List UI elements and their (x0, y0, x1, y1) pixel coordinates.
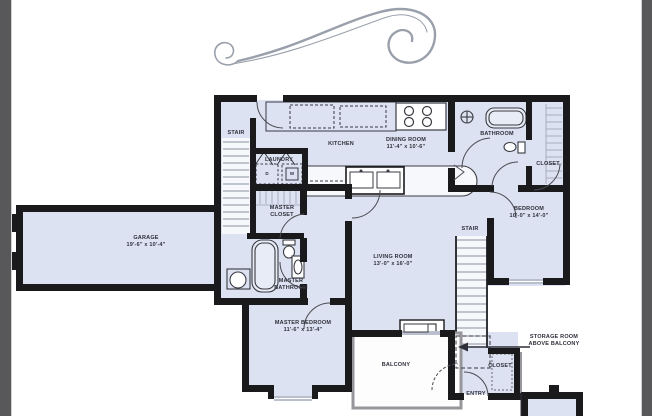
left-gutter (0, 0, 12, 416)
room-label-living: LIVING ROOM 13'-0" x 16'-0" (373, 254, 412, 268)
screen: STAIR LAUNDRY D W KITCHEN DINING ROOM 11… (0, 0, 652, 416)
room-label-laundry: LAUNDRY (265, 157, 293, 164)
flourish-ornament (215, 9, 435, 65)
room-label-master-bathroom: MASTER BATHROOM (274, 278, 308, 292)
room-label-closet-entry: CLOSET (488, 363, 512, 370)
stove-icon (396, 103, 446, 130)
room-label-bathroom: BATHROOM (480, 131, 514, 138)
room-label-master-closet: MASTER CLOSET (270, 205, 294, 219)
right-gutter (641, 0, 652, 416)
room-label-stair-left: STAIR (227, 130, 244, 137)
room-label-kitchen: KITCHEN (328, 141, 354, 148)
room-label-garage: GARAGE 19'-6" x 10'-4" (127, 235, 166, 249)
room-label-dining: DINING ROOM 11'-4" x 10'-6" (386, 137, 426, 151)
floorplan-drawing (0, 0, 652, 416)
room-label-storage: STORAGE ROOM ABOVE BALCONY (529, 334, 580, 348)
left-staircase (222, 138, 250, 234)
dryer-icon-label: D (265, 171, 268, 176)
balcony-outline (353, 333, 461, 408)
room-label-stair-right: STAIR (461, 226, 478, 233)
right-staircase (455, 236, 488, 348)
washer-icon-label: W (290, 171, 294, 176)
room-label-master-bedroom: MASTER BEDROOM 11'-6" x 13'-4" (275, 320, 331, 334)
room-label-bedroom: BEDROOM 10'-0" x 14'-0" (510, 206, 549, 220)
room-label-balcony: BALCONY (382, 362, 411, 369)
room-label-entry: ENTRY (466, 391, 485, 398)
room-label-closet-upper: CLOSET (536, 161, 560, 168)
